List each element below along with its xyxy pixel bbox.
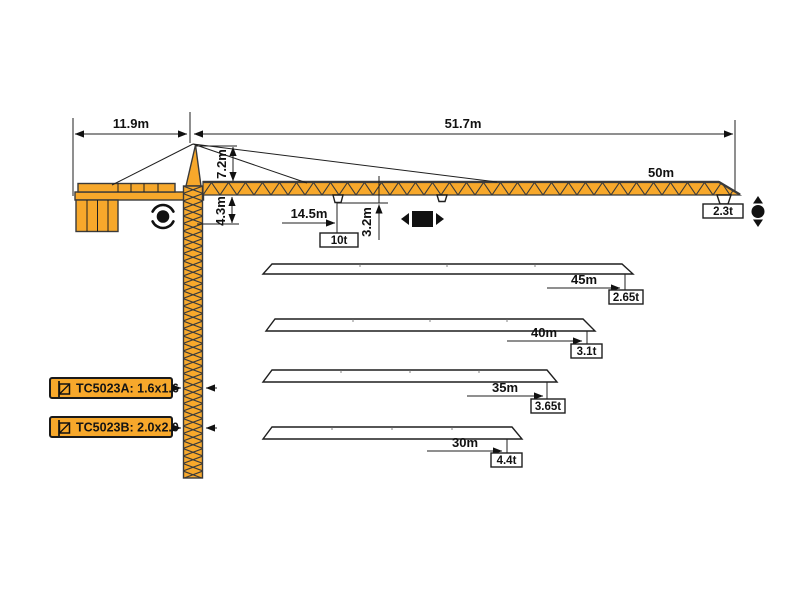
counterweight [76,200,118,232]
trolley-radius-label: 14.5m [291,206,328,221]
variant-40m-length-label: 40m [531,325,557,340]
model-b-label: TC5023B: 2.0x2.0 [76,421,179,435]
trolley-hanger [333,195,343,203]
main-jib-length-label: 50m [648,165,674,180]
variant-35m-load-label: 3.65t [535,401,561,413]
tip-load-label: 2.3t [713,206,733,218]
slew-height-label: 4.3m [213,196,228,226]
counter-jib-length-label: 11.9m [113,116,149,131]
variant-45m-length-label: 45m [571,272,597,287]
crane-spec-diagram: 11.9m 51.7m 7.2m 4.3m [0,0,800,600]
variant-30m-load-label: 4.4t [497,455,517,467]
hook-dim-label: 3.2m [359,207,374,237]
main-jib [203,182,740,196]
tower-mast [184,145,203,478]
variant-35m-length-label: 35m [492,380,518,395]
tip-hook [717,195,731,204]
crane-diagram-svg: 11.9m 51.7m 7.2m 4.3m [0,0,800,600]
trolley-load-label: 10t [331,235,348,247]
variant-45m-load-label: 2.65t [613,292,639,304]
jib-side-length-label: 51.7m [445,116,482,131]
jib-joint-hanger [437,195,447,202]
background [0,0,800,600]
variant-30m-length-label: 30m [452,435,478,450]
head-height-label: 7.2m [214,149,229,179]
variant-40m-load-label: 3.1t [577,346,597,358]
model-a-label: TC5023A: 1.6x1.6 [76,382,179,396]
